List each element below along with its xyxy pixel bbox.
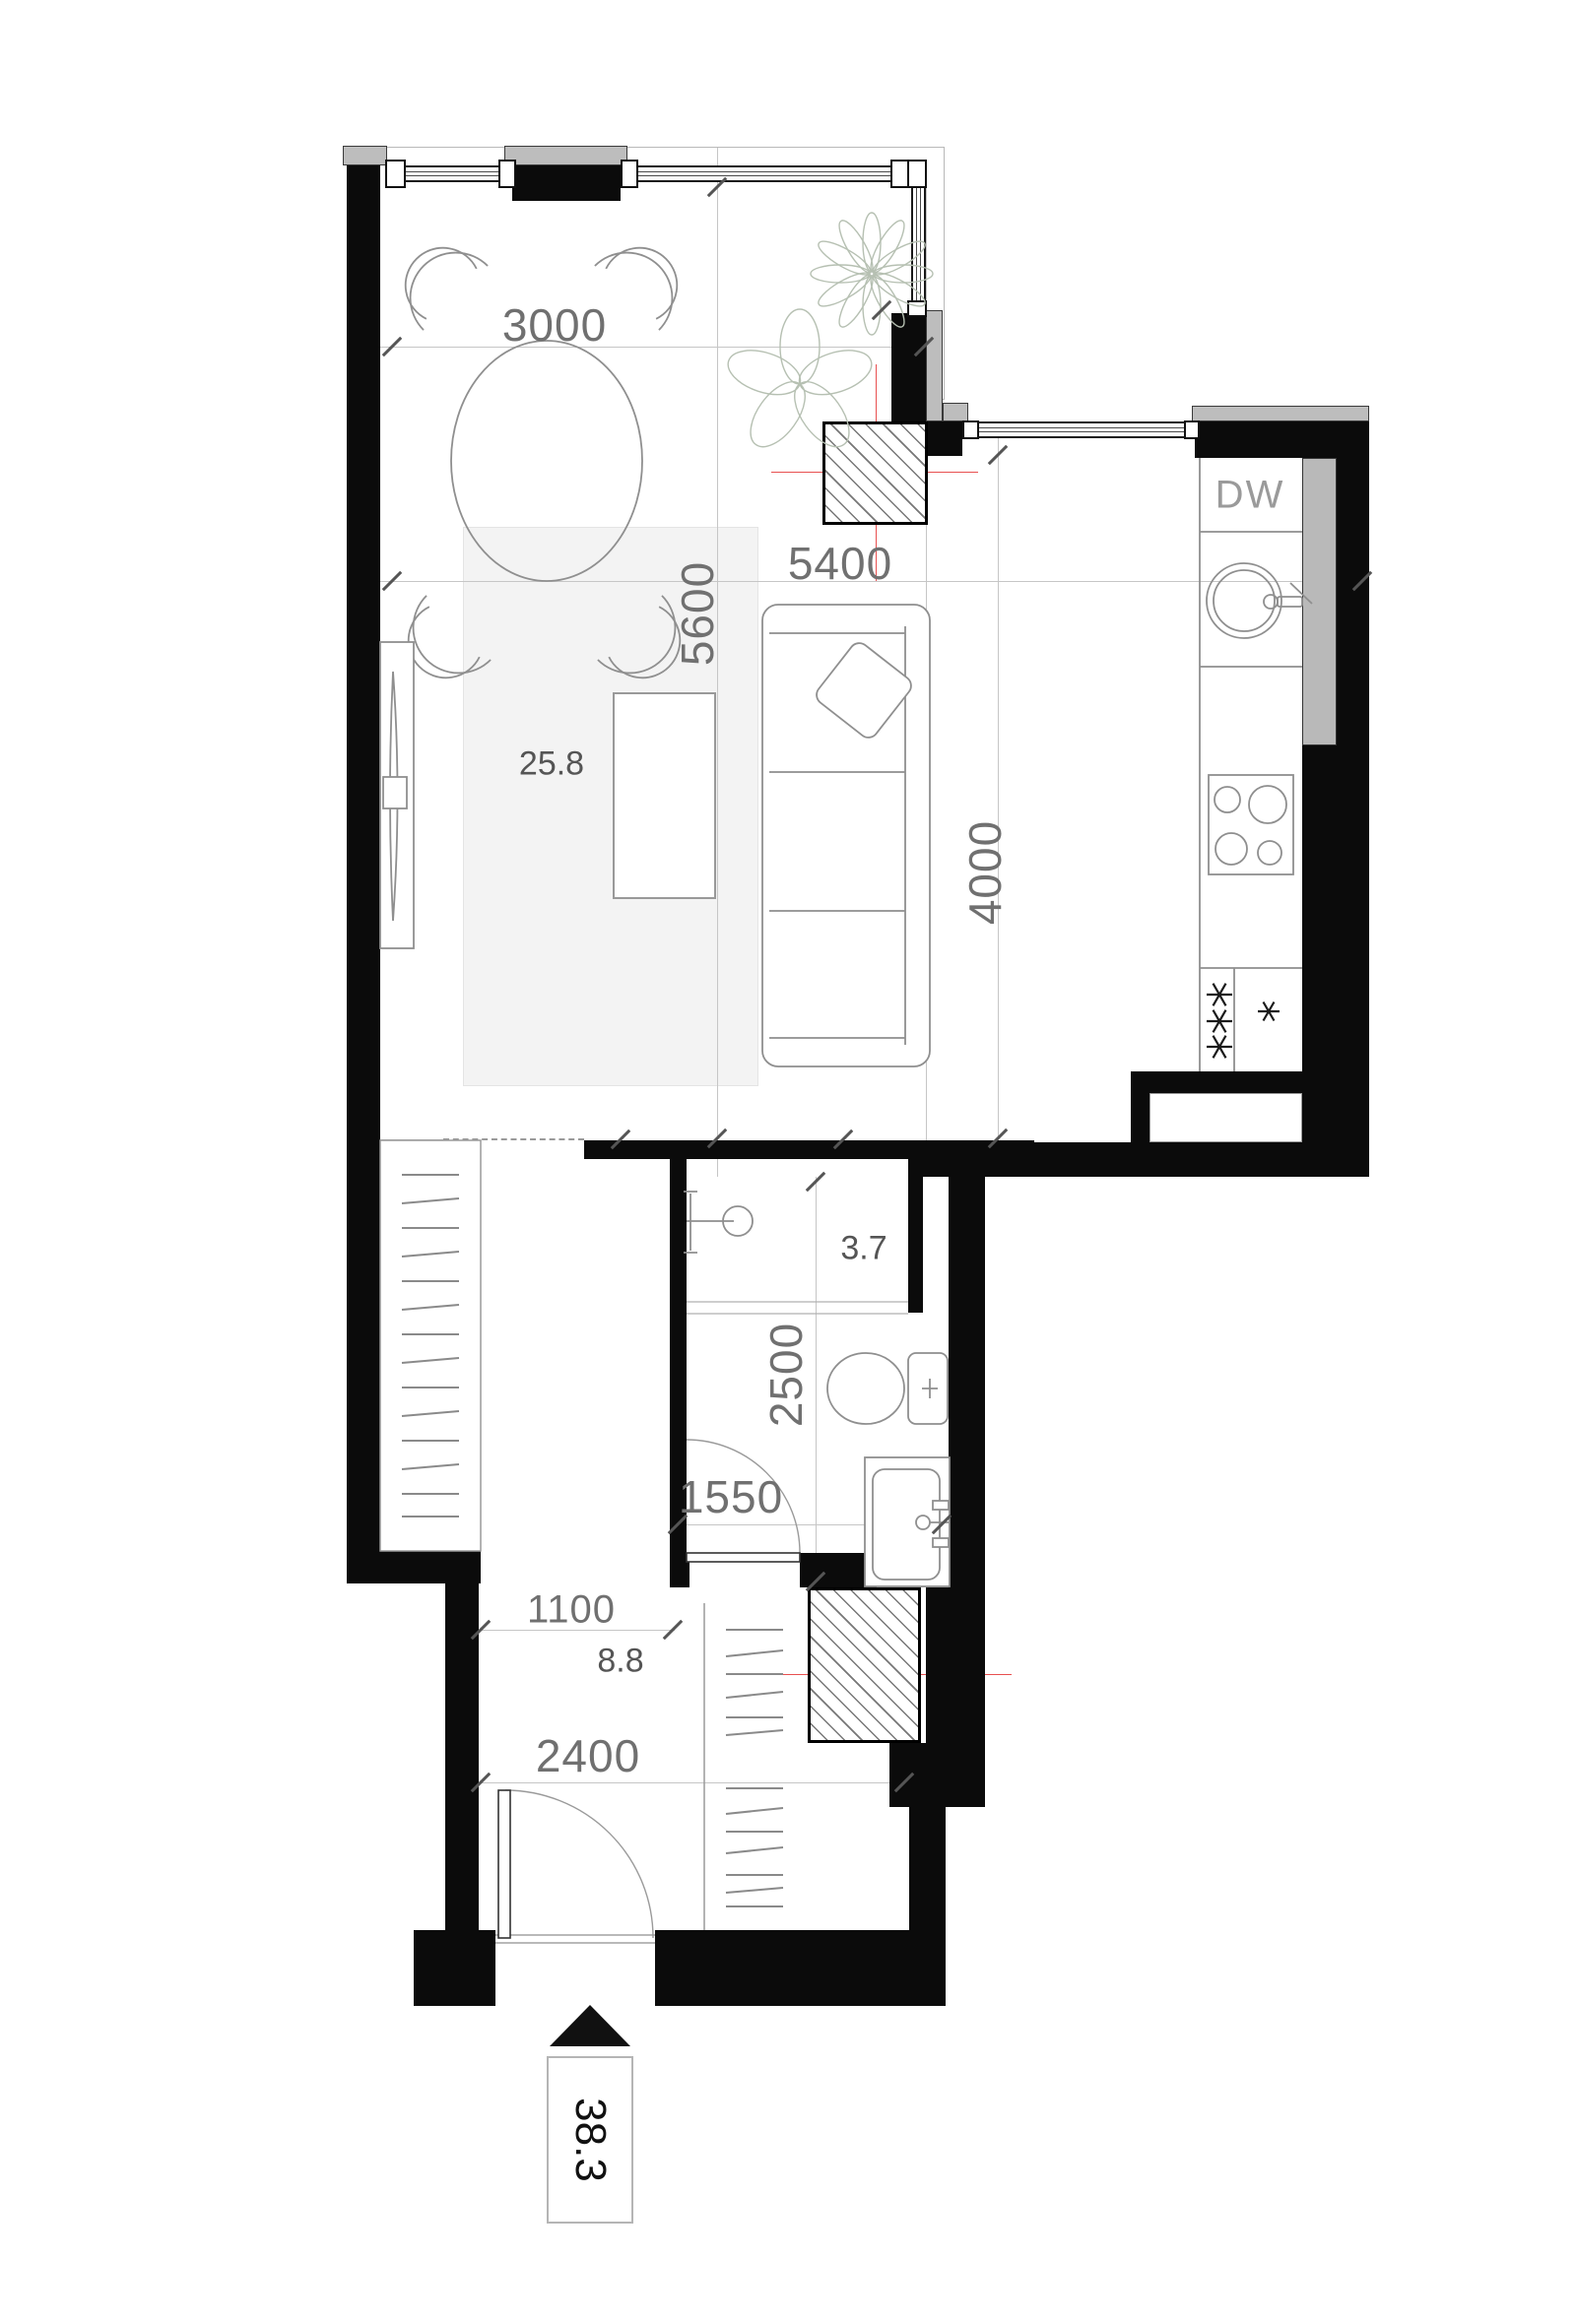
stove xyxy=(1209,775,1293,874)
north-arrow xyxy=(550,2005,630,2046)
dim-label-2400: 2400 xyxy=(536,1729,640,1782)
insulation-balcony-pier xyxy=(926,310,943,421)
dim-label-4000: 4000 xyxy=(958,820,1012,925)
wall-right-lower xyxy=(909,1807,946,2006)
insulation-kitchen-top xyxy=(1192,406,1369,421)
wall-bottom-corner xyxy=(414,1930,479,2006)
insulation-top-left xyxy=(343,146,387,165)
balcony-outline-right xyxy=(944,147,945,400)
window-living-right xyxy=(638,165,891,182)
dim-label-2500: 2500 xyxy=(759,1323,813,1427)
entry-threshold xyxy=(495,1934,655,1936)
wall-right-lower-step xyxy=(889,1743,985,1807)
dimension-line-1550 xyxy=(675,1524,949,1525)
coffee-table xyxy=(613,692,716,899)
dim-label-3000: 3000 xyxy=(502,298,607,352)
dim-label-5400: 5400 xyxy=(788,537,892,590)
wall-right-connector xyxy=(926,1587,985,1743)
kitchen-counter xyxy=(1200,458,1312,1071)
wall-bath-pier xyxy=(908,1159,923,1313)
wall-bath-bottom-a xyxy=(670,1553,689,1587)
shaft-lower xyxy=(808,1587,921,1743)
chair xyxy=(384,226,488,330)
window-post xyxy=(907,300,927,317)
toilet xyxy=(827,1353,948,1424)
dimension-line-3000 xyxy=(380,347,926,348)
vanity-sink xyxy=(865,1457,950,1586)
sofa xyxy=(762,605,930,1066)
window-post xyxy=(907,160,927,188)
shower-fixture xyxy=(684,1192,753,1253)
pillow xyxy=(813,639,915,742)
floor-plan: 3000 5400 5600 4000 2500 1550 1100 2400 … xyxy=(0,0,1576,2324)
wall-left xyxy=(347,164,380,1551)
wall-niche xyxy=(1149,1093,1302,1142)
dimension-line-2500 xyxy=(816,1177,817,1585)
wall-living-bottom xyxy=(347,1551,481,1583)
total-area-label: 38.3 xyxy=(565,2098,615,2182)
wall-bottom-left-of-door xyxy=(479,1930,495,2006)
window-post xyxy=(962,420,979,439)
fridge-stars xyxy=(1207,984,1280,1059)
wall-niche-left xyxy=(1131,1071,1149,1142)
insulation-kitchen-step xyxy=(943,403,968,421)
dim-label-1100: 1100 xyxy=(527,1588,616,1633)
wall-kitchen-step xyxy=(928,421,962,456)
entrance-door xyxy=(498,1790,653,1938)
insulation-window-pier xyxy=(504,146,627,165)
chair xyxy=(595,226,698,330)
balcony-outline-top xyxy=(343,147,944,148)
wardrobe-living xyxy=(380,1140,481,1551)
window-post xyxy=(1184,420,1200,439)
area-label-hallway: 8.8 xyxy=(597,1643,643,1681)
window-post xyxy=(621,160,638,188)
wall-bath-top xyxy=(584,1140,1034,1159)
shower-divider xyxy=(687,1302,908,1314)
window-kitchen xyxy=(978,421,1184,438)
dim-label-5600: 5600 xyxy=(671,561,724,666)
dimension-line-2400 xyxy=(479,1782,909,1783)
kitchen-sink xyxy=(1207,563,1281,638)
wardrobe-hall xyxy=(704,1603,783,1930)
tv-console xyxy=(380,642,414,948)
wall-balcony-pier xyxy=(891,313,926,421)
wall-right-outer xyxy=(1337,438,1369,1177)
dishwasher-label: DW xyxy=(1215,474,1285,518)
window-balcony xyxy=(911,187,926,302)
wall-window-pier xyxy=(512,164,621,201)
dim-label-1550: 1550 xyxy=(679,1470,783,1523)
wall-bath-right xyxy=(949,1159,985,1587)
zone-dashed-boundary xyxy=(443,1138,584,1140)
area-label-bathroom: 3.7 xyxy=(840,1230,886,1268)
entry-threshold xyxy=(495,1942,655,1944)
wall-bottom-right-of-door xyxy=(655,1930,946,2006)
wall-niche-right xyxy=(1302,1071,1340,1142)
area-label-living: 25.8 xyxy=(519,745,584,784)
dimension-line-4000 xyxy=(998,438,999,1142)
window-post xyxy=(498,160,516,188)
window-post xyxy=(385,160,406,188)
shaft-upper xyxy=(822,421,928,525)
wardrobe-top-line xyxy=(380,1139,443,1140)
shaft-wall-strip xyxy=(1302,458,1337,745)
dimension-tick xyxy=(872,300,892,321)
window-living-left xyxy=(406,165,498,182)
